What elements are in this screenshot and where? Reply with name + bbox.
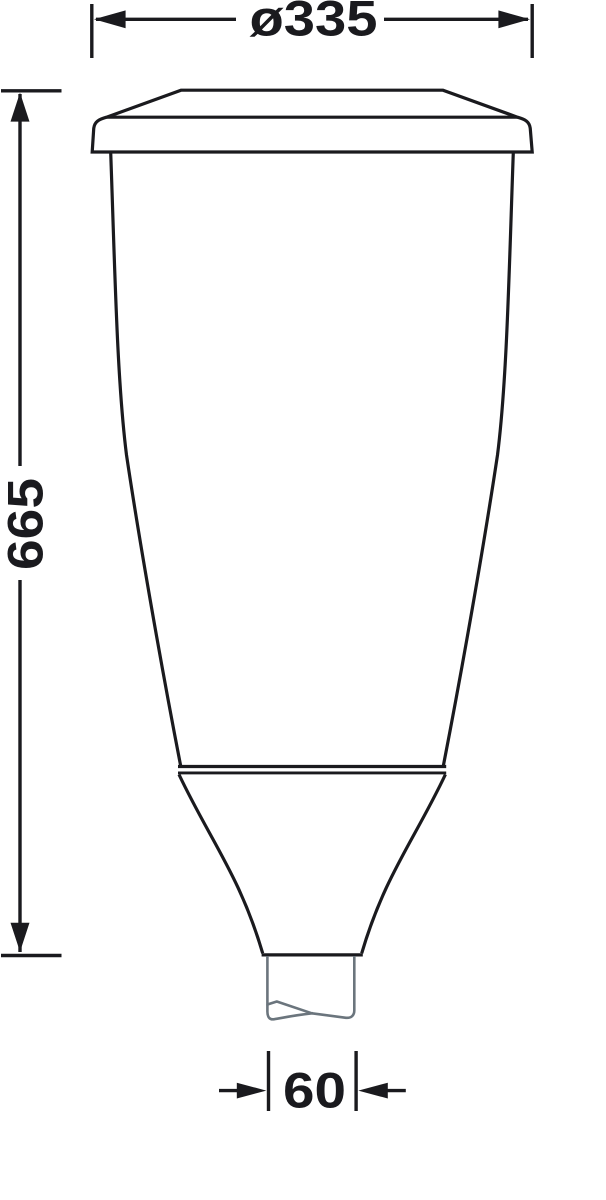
svg-text:665: 665 xyxy=(0,478,54,570)
svg-text:60: 60 xyxy=(283,1063,346,1119)
svg-text:ø335: ø335 xyxy=(250,0,378,47)
